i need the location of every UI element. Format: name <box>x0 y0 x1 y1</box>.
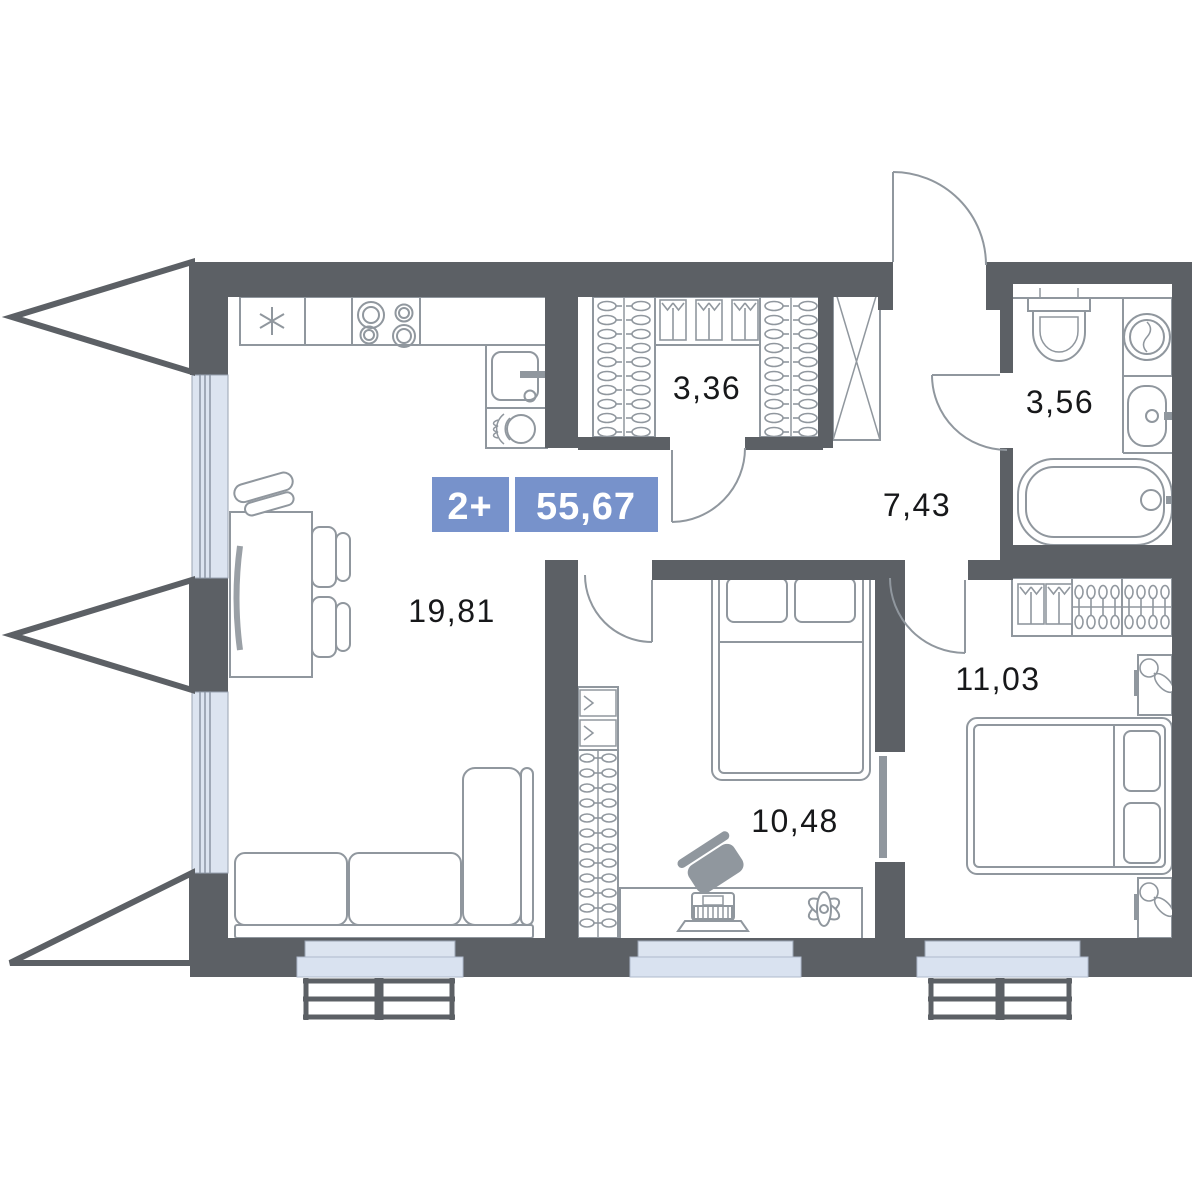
wall-bedroom-top <box>652 560 893 580</box>
wall-bathroom-bottom <box>1012 545 1172 578</box>
dining-table <box>230 512 312 677</box>
room-label-bedroom-2: 11,03 <box>955 661 1040 697</box>
dining-chair <box>312 527 350 587</box>
ventilation-shaft <box>833 283 880 440</box>
wall-living-closet <box>545 297 578 448</box>
wall-top-right <box>1012 262 1192 284</box>
room-label-wardrobe: 3,36 <box>673 370 741 406</box>
wall-top <box>190 262 893 297</box>
wall-entrance-stub-left <box>878 297 893 310</box>
pillow <box>795 578 855 622</box>
wall-closet-bottom-right <box>745 437 823 450</box>
badge-area-label: 55,67 <box>536 486 636 528</box>
washing-machine-icon <box>1123 298 1172 376</box>
bedroom-hanger-column <box>578 750 618 938</box>
bed-double-2 <box>967 718 1172 874</box>
closet-hanger-section-right <box>760 297 822 437</box>
wall-entrance-stub-right <box>986 297 1013 310</box>
badge-rooms-label: 2+ <box>447 486 492 528</box>
window-living <box>297 941 463 977</box>
room-label-living: 19,81 <box>408 593 496 629</box>
nightstand <box>1134 878 1176 938</box>
wall-bathroom-left-upper <box>1000 262 1013 373</box>
wall-living-bedroom <box>545 560 578 938</box>
wall-closet-bottom-left <box>578 437 670 450</box>
window-bedroom <box>630 941 801 977</box>
room-label-bedroom: 10,48 <box>751 803 839 839</box>
sliding-door-leaf <box>879 756 887 858</box>
wall-bathroom-left-lower <box>1000 448 1013 563</box>
pillow <box>1124 803 1160 863</box>
wall-hallway-bedroom2 <box>968 560 1013 580</box>
wall-right <box>1172 262 1192 977</box>
floor-plan: 19,81 3,36 3,56 7,43 10,48 11,03 2+ 55,6… <box>0 0 1200 1200</box>
closet-shelf-unit <box>655 297 760 345</box>
window-bedroom-2 <box>917 941 1088 977</box>
bedroom-shelf-unit <box>578 687 618 750</box>
wall-left-middle <box>190 578 228 692</box>
pillow <box>727 578 787 622</box>
room-label-hallway: 7,43 <box>883 487 951 523</box>
plan-type-badge: 2+ 55,67 <box>432 477 658 532</box>
wall-bedrooms-divider-lower <box>875 862 905 938</box>
wall-closet-right <box>818 297 833 448</box>
window-left-upper <box>192 375 228 578</box>
pillow <box>1124 731 1160 791</box>
bench-icon <box>237 546 241 650</box>
bed-double <box>712 565 870 780</box>
wall-left-upper <box>190 262 228 375</box>
room-label-bathroom: 3,56 <box>1026 384 1094 420</box>
window-left-lower <box>192 692 228 873</box>
nightstand <box>1134 655 1176 715</box>
wardrobe-unit <box>1012 578 1172 636</box>
dining-chair <box>312 597 350 657</box>
closet-hanger-section-left <box>593 297 655 437</box>
